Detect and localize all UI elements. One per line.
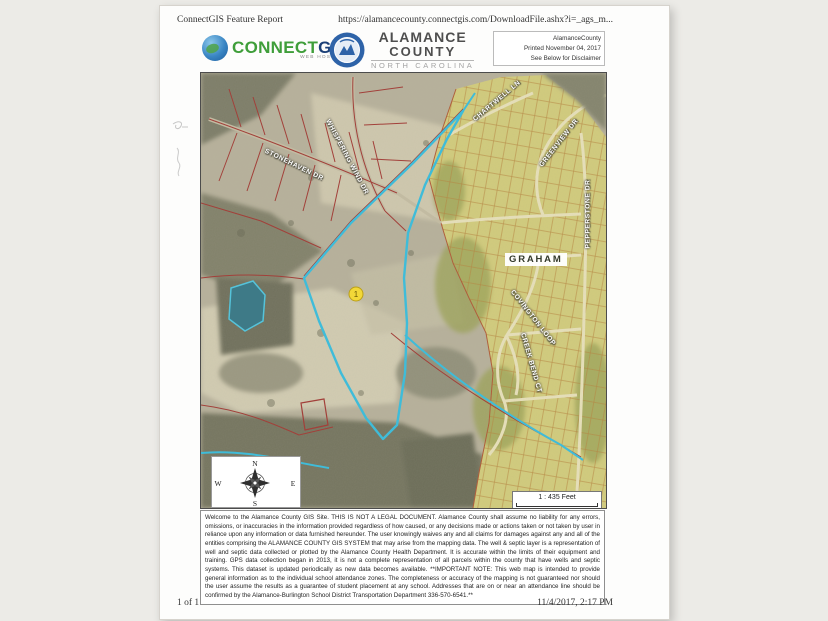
map: 1 STONEHAVEN DR WHISPERING WIND DR CHART… — [200, 72, 607, 509]
disclaimer-text: Welcome to the Alamance County GIS Site.… — [200, 510, 605, 605]
compass-s: S — [253, 499, 257, 507]
print-info-box: AlamanceCounty Printed November 04, 2017… — [493, 31, 605, 66]
margin-pencil-marks — [169, 114, 191, 180]
pond — [229, 281, 265, 331]
print-info-account: AlamanceCounty — [497, 34, 601, 44]
county-name-line1: ALAMANCE — [371, 30, 474, 44]
county-seal-icon — [328, 31, 366, 69]
scale-line — [516, 503, 598, 507]
report-url: https://alamancecounty.connectgis.com/Do… — [338, 15, 613, 25]
compass-n: N — [252, 459, 258, 468]
compass-rose: N S W E — [211, 456, 301, 508]
county-state: NORTH CAROLINA — [371, 60, 474, 70]
print-info-note: See Below for Disclaimer — [497, 54, 601, 64]
globe-icon — [202, 35, 228, 61]
compass-w: W — [214, 479, 222, 488]
alamance-county-logo: ALAMANCE COUNTY NORTH CAROLINA — [328, 30, 474, 70]
scale-bar: 1 : 435 Feet — [512, 491, 602, 509]
browser-print-header: ConnectGIS Feature Report https://alaman… — [177, 15, 613, 25]
connectgis-logo: CONNECTGIS WEB HOSTING — [202, 35, 347, 61]
street-label-pepperstone: PEPPERSTONE DR — [585, 179, 592, 248]
aerial-map-image: 1 — [201, 73, 606, 508]
county-name-line2: COUNTY — [371, 45, 474, 58]
compass-e: E — [291, 479, 296, 488]
print-preview-page: ConnectGIS Feature Report https://alaman… — [0, 0, 828, 621]
report-title: ConnectGIS Feature Report — [177, 15, 283, 25]
print-datetime: 11/4/2017, 2:17 PM — [537, 598, 613, 608]
browser-print-footer: 1 of 1 11/4/2017, 2:17 PM — [177, 598, 613, 608]
print-info-date: Printed November 04, 2017 — [497, 44, 601, 54]
report-header: CONNECTGIS WEB HOSTING ALAMANCE COUNTY N… — [200, 30, 605, 72]
city-label: GRAHAM — [505, 253, 567, 266]
parcel-marker: 1 — [349, 287, 363, 301]
page-count: 1 of 1 — [177, 598, 199, 608]
report-paper: ConnectGIS Feature Report https://alaman… — [159, 5, 670, 620]
marker-number: 1 — [354, 290, 359, 299]
scale-text: 1 : 435 Feet — [538, 494, 575, 501]
